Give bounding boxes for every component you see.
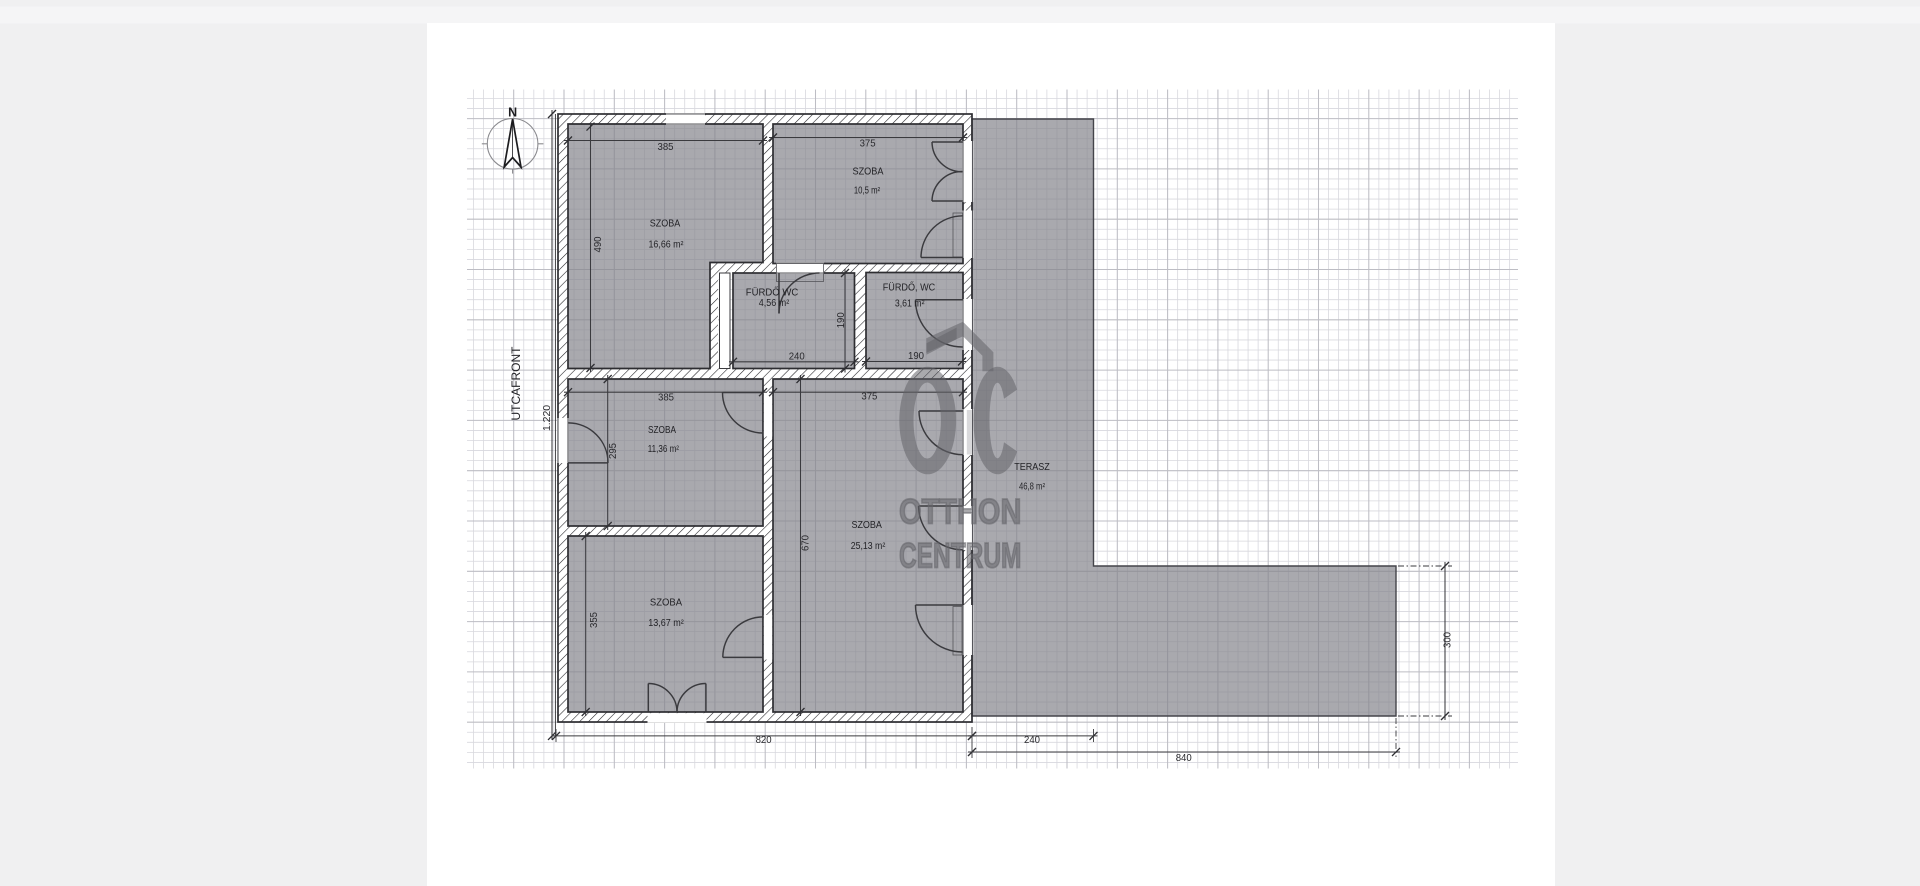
svg-text:SZOBA: SZOBA (650, 218, 681, 229)
svg-text:1.220: 1.220 (542, 405, 553, 431)
svg-text:240: 240 (1024, 735, 1040, 746)
svg-text:SZOBA: SZOBA (853, 166, 884, 177)
svg-text:10,5 m²: 10,5 m² (854, 185, 881, 196)
svg-text:SZOBA: SZOBA (851, 520, 882, 531)
svg-text:190: 190 (836, 312, 847, 328)
svg-text:190: 190 (908, 351, 924, 362)
svg-text:3,61 m²: 3,61 m² (895, 299, 925, 310)
svg-text:25,13 m²: 25,13 m² (851, 541, 886, 552)
svg-text:670: 670 (801, 535, 812, 551)
svg-text:13,67 m²: 13,67 m² (648, 618, 684, 629)
svg-text:TERASZ: TERASZ (1014, 462, 1050, 473)
svg-text:46,8 m²: 46,8 m² (1019, 482, 1046, 493)
svg-text:16,66 m²: 16,66 m² (649, 239, 685, 250)
svg-text:820: 820 (756, 735, 772, 746)
svg-text:385: 385 (658, 142, 674, 153)
svg-text:375: 375 (860, 138, 876, 149)
svg-text:N: N (508, 106, 517, 120)
svg-text:840: 840 (1176, 753, 1192, 764)
svg-text:FÜRDŐ, WC: FÜRDŐ, WC (883, 283, 936, 294)
svg-text:240: 240 (789, 352, 805, 363)
svg-text:355: 355 (589, 612, 600, 628)
svg-text:4,56 m²: 4,56 m² (759, 298, 790, 309)
svg-text:SZOBA: SZOBA (648, 425, 676, 436)
svg-text:385: 385 (658, 393, 674, 404)
svg-text:295: 295 (608, 443, 619, 459)
svg-text:OTTHON: OTTHON (899, 493, 1021, 532)
svg-text:SZOBA: SZOBA (650, 598, 683, 609)
svg-text:CENTRUM: CENTRUM (899, 537, 1021, 576)
svg-text:490: 490 (593, 236, 604, 252)
svg-text:375: 375 (861, 392, 877, 403)
svg-text:UTCAFRONT: UTCAFRONT (511, 347, 523, 421)
svg-text:300: 300 (1443, 632, 1454, 648)
svg-text:11,36 m²: 11,36 m² (648, 444, 680, 455)
